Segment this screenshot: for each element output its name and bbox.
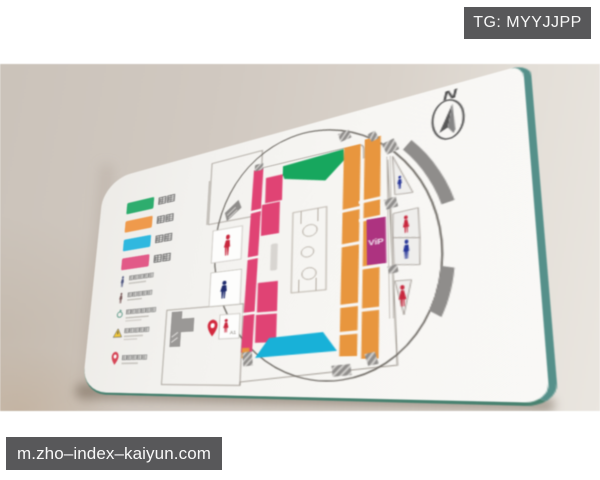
svg-text:A1: A1 [230, 330, 237, 336]
